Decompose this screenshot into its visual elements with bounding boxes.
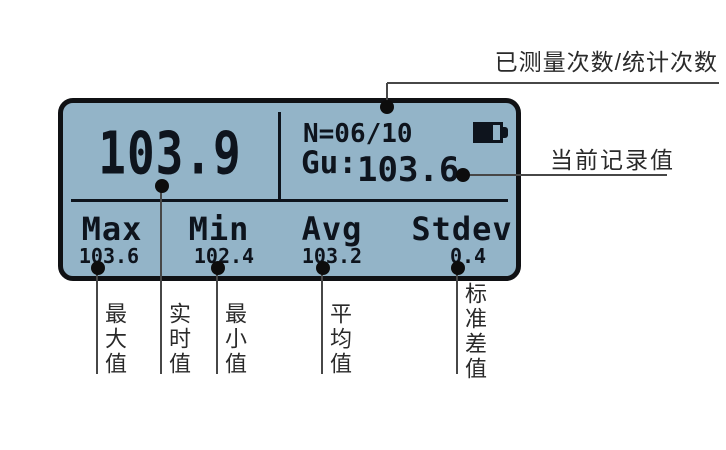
callout-dot-stdev [451,261,465,275]
stat-value-min: 102.4 [194,246,254,266]
battery-level [476,125,493,140]
annotation-max-value: 最大值 [103,302,125,377]
lcd-vertical-divider [278,112,281,202]
stat-label-stdev: Stdev [411,213,512,245]
annotation-stdev-value: 标准差值 [463,282,485,382]
stat-label-avg: Avg [302,213,363,245]
leader-line-avg [321,268,323,374]
leader-line-measured-count [387,82,719,84]
callout-dot-measured-count [380,100,394,114]
current-record-row: Gu: 103.6 [301,148,459,187]
annotation-measured-count: 已测量次数/统计次数 [495,43,718,77]
stat-value-avg: 103.2 [302,246,362,266]
leader-line-realtime [160,186,162,374]
stat-label-min: Min [189,213,250,245]
battery-icon [473,122,503,143]
realtime-reading-value: 103.9 [98,118,241,187]
leader-line-stdev [456,268,458,374]
callout-dot-avg [316,261,330,275]
leader-line-min [216,268,218,374]
device-lcd-display: 103.9 N=06/10 Gu: 103.6 Max Min Avg Stde… [58,98,521,281]
lcd-horizontal-divider [71,199,508,202]
record-unit-label: Gu: [301,148,357,179]
annotation-avg-value: 平均值 [328,302,350,377]
annotation-current-record: 当前记录值 [550,141,675,175]
battery-terminal [503,127,508,138]
stat-value-max: 103.6 [79,246,139,266]
annotation-realtime-value: 实时值 [167,302,189,377]
stat-label-max: Max [82,213,143,245]
record-value: 103.6 [357,153,459,187]
annotation-min-value: 最小值 [223,302,245,377]
callout-dot-min [211,261,225,275]
leader-line-max [96,268,98,374]
callout-dot-current-record [456,168,470,182]
callout-dot-max [91,261,105,275]
realtime-reading: 103.9 [63,107,277,199]
diagram-canvas: 103.9 N=06/10 Gu: 103.6 Max Min Avg Stde… [0,0,726,450]
callout-dot-realtime [155,179,169,193]
